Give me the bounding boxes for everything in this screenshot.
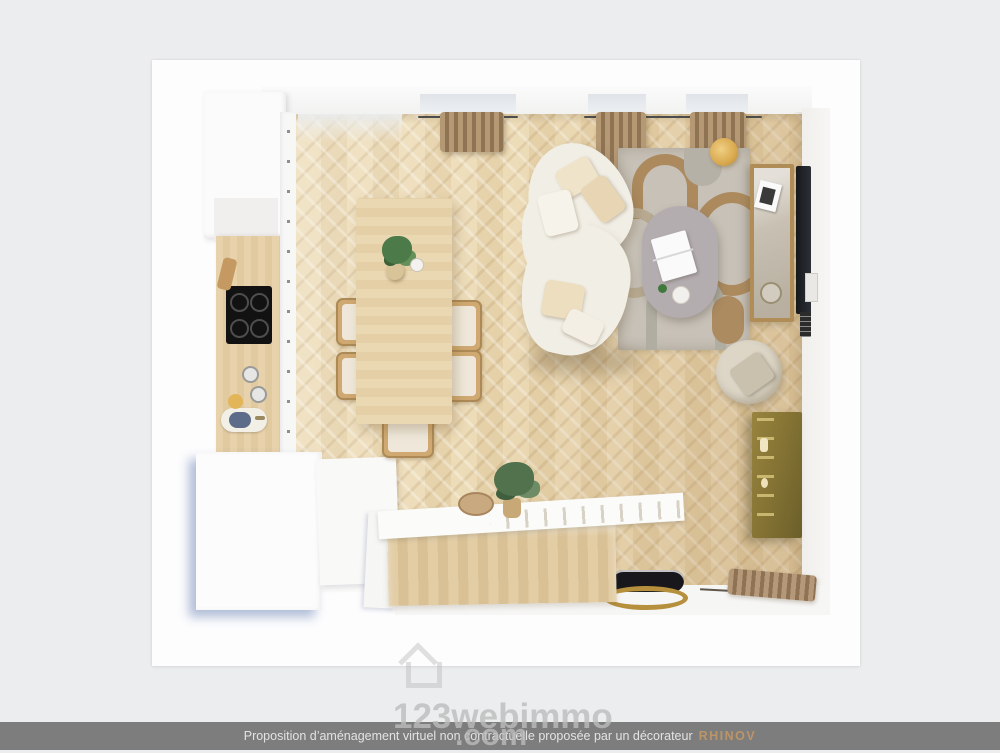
sink-faucet xyxy=(255,416,265,420)
burner-icon xyxy=(230,293,249,312)
island-plant-pot xyxy=(503,498,521,518)
island-bowl xyxy=(458,492,494,516)
floor-lamp xyxy=(710,138,738,166)
burner-icon xyxy=(250,293,269,312)
induction-cooktop xyxy=(226,286,272,344)
shelf-slots xyxy=(757,418,774,532)
coffee-table-cup xyxy=(672,286,690,304)
counter-jar xyxy=(242,366,259,383)
window-3 xyxy=(686,94,748,112)
coffee-table-plant xyxy=(658,284,667,293)
shelf-object xyxy=(761,478,768,488)
curtain-left xyxy=(440,112,504,152)
lower-cabinet-block xyxy=(196,452,322,610)
counter-jar xyxy=(250,386,267,403)
wall-panel xyxy=(805,273,818,302)
butter-dish xyxy=(228,394,243,409)
window-light-reflection xyxy=(298,112,402,142)
watermark-tld: .com xyxy=(455,717,527,753)
house-icon xyxy=(406,662,442,688)
cabinet-knobs xyxy=(287,130,290,450)
rug-blob-motif xyxy=(712,296,744,344)
burner-icon xyxy=(230,319,249,338)
caption-brand: RHINOV xyxy=(699,729,757,743)
dining-table xyxy=(356,198,452,424)
floorplan-render-page: 123webimmo .com Proposition d’aménagemen… xyxy=(0,0,1000,750)
plant-pot xyxy=(386,262,404,280)
console-vase xyxy=(760,282,782,304)
window-1 xyxy=(420,94,516,112)
table-cup xyxy=(410,258,424,272)
burner-icon xyxy=(250,319,269,338)
window-2 xyxy=(588,94,646,112)
shelf-object xyxy=(760,438,768,452)
sink-basin xyxy=(229,412,251,428)
island-plant xyxy=(494,462,534,496)
wall-switch xyxy=(800,312,811,337)
